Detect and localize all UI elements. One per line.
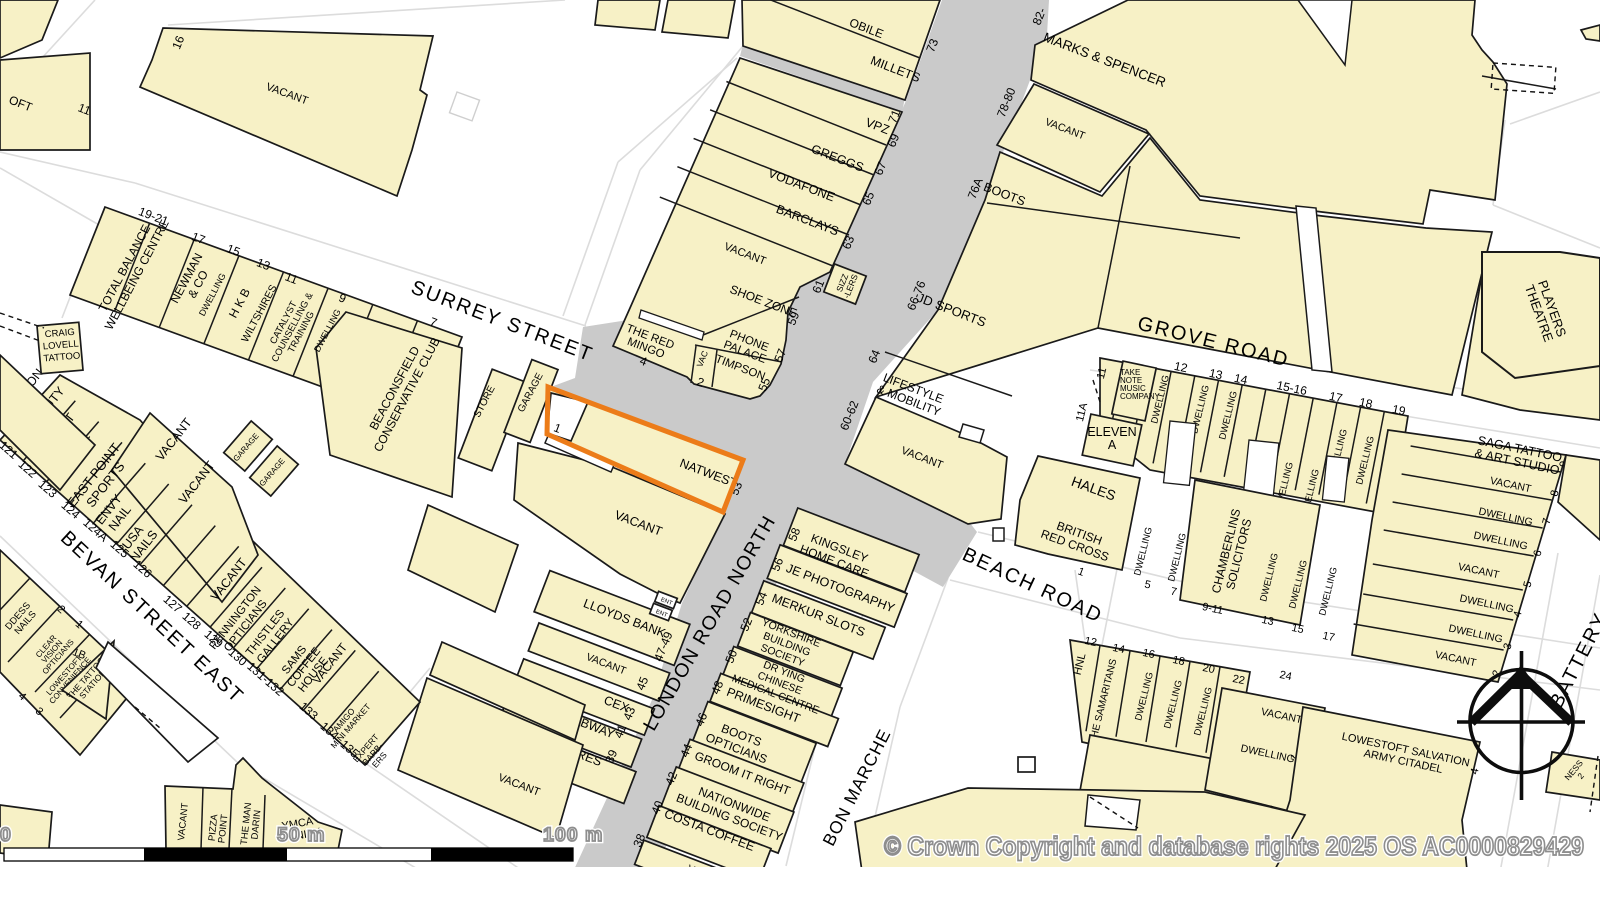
svg-text:20: 20 — [1201, 662, 1215, 676]
svg-text:16: 16 — [1141, 647, 1155, 661]
svg-text:17: 17 — [1321, 630, 1335, 644]
svg-text:14: 14 — [1111, 642, 1125, 656]
svg-text:22: 22 — [1231, 673, 1245, 687]
svg-text:18: 18 — [1171, 654, 1185, 668]
svg-text:PIZZAPOINT: PIZZAPOINT — [207, 813, 231, 844]
svg-text:24: 24 — [1278, 669, 1292, 683]
svg-text:100 m: 100 m — [543, 824, 603, 846]
svg-text:15: 15 — [1290, 622, 1304, 636]
svg-text:12: 12 — [1083, 635, 1097, 649]
svg-text:© Crown Copyright and database: © Crown Copyright and database rights 20… — [884, 831, 1584, 861]
svg-text:13: 13 — [1260, 614, 1274, 628]
svg-text:0: 0 — [0, 824, 12, 846]
svg-text:50 m: 50 m — [277, 824, 325, 846]
